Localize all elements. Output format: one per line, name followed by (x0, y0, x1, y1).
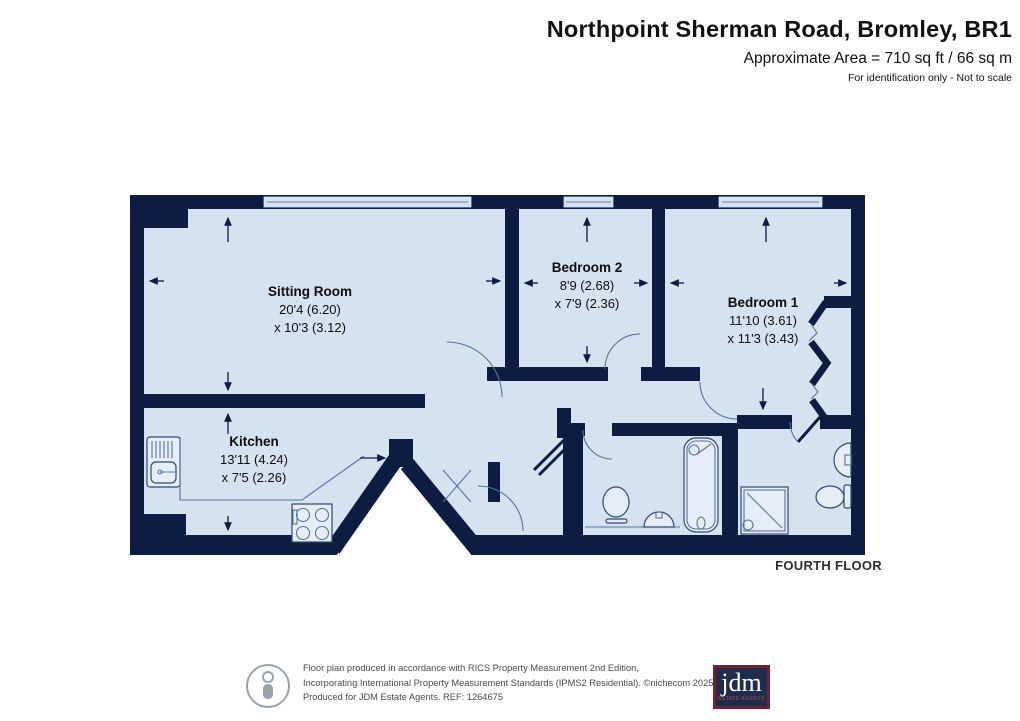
svg-text:20'4 (6.20): 20'4 (6.20) (279, 302, 341, 317)
svg-text:13'11 (4.24): 13'11 (4.24) (220, 452, 288, 467)
label-bedroom-1: Bedroom 1 11'10 (3.61) x 11'3 (3.43) (728, 295, 799, 346)
label-sitting-room: Sitting Room 20'4 (6.20) x 10'3 (3.12) (268, 284, 352, 335)
person-icon (245, 663, 291, 709)
svg-text:x 7'5 (2.26): x 7'5 (2.26) (222, 470, 287, 485)
svg-text:x 11'3 (3.43): x 11'3 (3.43) (728, 331, 799, 346)
jdm-logo-text: jdm (716, 669, 767, 696)
hob (292, 504, 332, 542)
window-bedroom-2 (563, 196, 614, 208)
svg-text:x 7'9 (2.36): x 7'9 (2.36) (555, 296, 620, 311)
svg-text:Bedroom 2: Bedroom 2 (552, 260, 623, 275)
label-kitchen: Kitchen 13'11 (4.24) x 7'5 (2.26) (220, 434, 288, 485)
footer-line-2: Incorporating International Property Mea… (303, 676, 716, 691)
kitchen-sink (147, 437, 180, 487)
floorplan-drawing: Sitting Room 20'4 (6.20) x 10'3 (3.12) K… (0, 0, 1020, 721)
svg-text:Kitchen: Kitchen (229, 434, 279, 449)
jdm-logo-subtext: ESTATE AGENTS (716, 696, 767, 702)
jdm-logo: jdm ESTATE AGENTS (713, 665, 770, 709)
footer-line-1: Floor plan produced in accordance with R… (303, 661, 716, 676)
shower (741, 487, 788, 534)
svg-text:8'9 (2.68): 8'9 (2.68) (560, 278, 615, 293)
svg-text:Sitting Room: Sitting Room (268, 284, 352, 299)
footer: Floor plan produced in accordance with R… (0, 655, 1020, 721)
label-bedroom-2: Bedroom 2 8'9 (2.68) x 7'9 (2.36) (552, 260, 623, 311)
floor-label: FOURTH FLOOR (762, 558, 882, 573)
window-sitting-room (263, 196, 472, 208)
footer-line-3: Produced for JDM Estate Agents. REF: 126… (303, 690, 716, 705)
svg-text:Bedroom 1: Bedroom 1 (728, 295, 799, 310)
bathtub (684, 438, 718, 532)
floorplan-page: Northpoint Sherman Road, Bromley, BR1 Ap… (0, 0, 1020, 721)
svg-text:11'10 (3.61): 11'10 (3.61) (729, 313, 797, 328)
ensuite-toilet (816, 485, 851, 508)
svg-text:x 10'3 (3.12): x 10'3 (3.12) (274, 320, 346, 335)
window-bedroom-1 (718, 196, 823, 208)
footer-disclaimer: Floor plan produced in accordance with R… (303, 661, 716, 705)
